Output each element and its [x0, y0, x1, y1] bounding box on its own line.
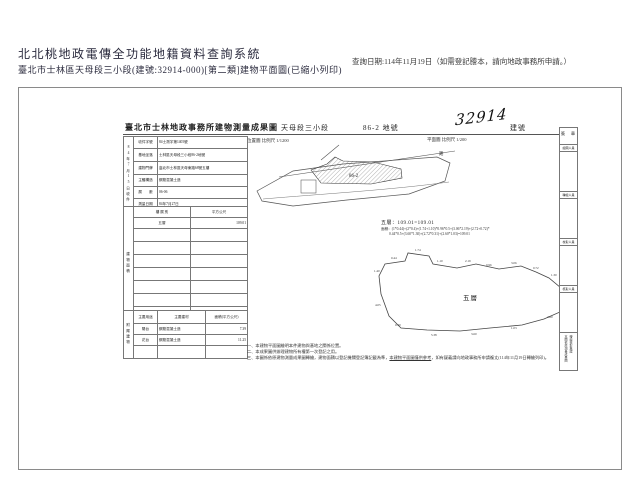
handwritten-building-number: 32914 — [455, 105, 508, 130]
road-name-label: 路 — [439, 150, 444, 157]
annex-empty-cell — [206, 346, 248, 359]
annex-table-spine: 附屬建物 — [124, 311, 134, 359]
annex-row-use: 陽台 — [134, 324, 158, 335]
annex-empty-cell — [158, 346, 206, 359]
annex-row-material: 鋼筋混凝土造 — [158, 335, 206, 346]
area-empty-cell — [134, 229, 191, 242]
area-empty-cell — [134, 294, 191, 307]
sign-blank — [560, 199, 577, 239]
floor-plan-floor-label: 五層 — [463, 294, 478, 302]
footnote-3-text: 三、本圖係依原建物測量成果圖轉繪，建物面積以登記機關登記簿記載為準， — [247, 355, 389, 360]
adjacent-structure — [301, 180, 316, 193]
footnote-3-underlined: 本建物平面圖僅供參考 — [389, 355, 431, 360]
sign-field-proofreader: 校對人員 — [560, 239, 577, 246]
title-underline — [123, 134, 559, 135]
dimension-label: 0.96 — [486, 263, 492, 267]
annex-table: 附屬建物 主要用途 主要建材 面積(平方公尺) 陽台 鋼筋混凝土造 7.39 花… — [123, 310, 248, 359]
dimension-label: 0.44 — [391, 256, 397, 260]
query-date: 查詢日期:114年11月19日（如需登記謄本，請向地政事務所申請。） — [352, 56, 571, 67]
scanned-document: 臺北市士林地政事務所建物測量成果圖 天母段三小段 86-2 地號 32914 建… — [18, 87, 622, 470]
stamp-note-line-1: 本圖依原測量成果圖 — [564, 335, 568, 370]
area-col-sqm: 平方公尺 — [191, 207, 248, 218]
dimension-label: 2.19 — [465, 259, 471, 263]
area-empty-cell — [191, 281, 248, 294]
site-location-map: 86-2 路 — [251, 144, 456, 216]
stamp-note-line-2: 轉繪核對無誤 — [569, 335, 573, 370]
dimension-label: 3.60 — [471, 332, 477, 336]
dimension-label: 3.06 — [511, 261, 517, 265]
doc-title: 臺北市士林地政事務所建物測量成果圖 — [125, 122, 278, 133]
annex-header-use: 主要用途 — [134, 311, 158, 324]
signature-header: 簽 章 — [560, 128, 577, 145]
annex-row-area: 11.25 — [206, 335, 248, 346]
info-label: 建物門牌 — [134, 162, 158, 175]
area-empty-cell — [191, 242, 248, 255]
area-empty-cell — [134, 268, 191, 281]
dimension-label: 2.60 — [547, 315, 553, 319]
sign-blank — [560, 152, 577, 192]
receipt-date-spine: 84年7月15日收件 — [124, 137, 134, 211]
dimension-label: 0.72 — [533, 266, 539, 270]
area-table-spine: 建物面積 — [124, 207, 134, 320]
sign-field-drafter: 繪圖人員 — [560, 145, 577, 152]
floor-plan-outline — [379, 253, 565, 331]
doc-section-name: 天母段三小段 — [281, 123, 329, 133]
info-value: 06-06 — [158, 187, 248, 199]
annex-row-area: 7.39 — [206, 324, 248, 335]
annex-header-material: 主要建材 — [158, 311, 206, 324]
area-col-floor: 樓 層 別 — [134, 207, 191, 218]
annex-row-material: 鋼筋混凝土造 — [158, 324, 206, 335]
info-value: 鋼筋混凝土造 — [158, 175, 248, 187]
footnotes: 一、本建物平面圖繪明本件建物與基地之關係位置。 二、本成果圖供辦理建物所有權第一… — [247, 343, 581, 361]
area-empty-cell — [191, 255, 248, 268]
dimension-label: 0.40 — [395, 323, 401, 327]
info-label: 層 數 — [134, 187, 158, 199]
sign-field-transcriber: 轉繪人員 — [560, 192, 577, 199]
annex-header-area: 面積(平方公尺) — [206, 311, 248, 324]
area-formula-line-2: 0.44*0.5+(3.60*1.30)+(2.72*0.31)+(2.60*1… — [389, 232, 470, 236]
system-title: 北北桃地政電傳全功能地籍資料查詢系統 — [18, 45, 261, 62]
dimension-label: 1.03 — [511, 326, 517, 330]
signature-column: 簽 章 繪圖人員 轉繪人員 校對人員 核對人員 本圖依原測量成果圖 轉繪核對無誤 — [559, 127, 578, 371]
info-label: 主體構造 — [134, 175, 158, 187]
area-empty-cell — [134, 242, 191, 255]
floor-plan-scale: 平面圖 比例尺 1/200 — [427, 137, 467, 143]
stamp-note: 本圖依原測量成果圖 轉繪核對無誤 — [560, 333, 577, 370]
area-table: 建物面積 樓 層 別 平方公尺 五層 109.01 合 計 109.01 — [123, 206, 248, 320]
annex-empty-cell — [134, 346, 158, 359]
info-label: 基地坐落 — [134, 149, 158, 162]
sign-blank — [560, 246, 577, 286]
info-value: 84士測字第1405號 — [158, 137, 248, 149]
dimension-label: 1.30 — [551, 273, 557, 277]
area-empty-cell — [191, 229, 248, 242]
info-label: 收件字號 — [134, 137, 158, 149]
area-row-value: 109.01 — [191, 218, 248, 229]
info-value: 士林區天母段三小段86-2地號 — [158, 149, 248, 162]
parcel-number-label: 86-2 — [349, 174, 359, 179]
document-subtitle: 臺北市士林區天母段三小段(建號:32914-000)[第二類]建物平面圖(已縮小… — [18, 63, 342, 76]
building-number-label: 建號 — [510, 123, 526, 133]
floor-plan-drawing: 五層 0.441.741.102.190.963.060.721.302.720… — [371, 246, 586, 342]
footnote-3-tail: ，如有疑義請向地政事務所申請複丈(114年11月19日轉繪列印)。 — [431, 355, 549, 360]
area-empty-cell — [134, 281, 191, 294]
footnote-3: 三、本圖係依原建物測量成果圖轉繪，建物面積以登記機關登記簿記載為準，本建物平面圖… — [247, 355, 581, 361]
dimension-label: 5.38 — [431, 333, 437, 337]
doc-lot-number: 86-2 地號 — [363, 123, 399, 133]
info-table: 84年7月15日收件 收件字號 84士測字第1405號 基地坐落 士林區天母段三… — [123, 136, 248, 211]
dimension-label: 4.05 — [375, 303, 381, 307]
dimension-label: 1.40 — [374, 269, 380, 273]
dimension-label: 1.74 — [415, 248, 421, 252]
annex-row-use: 花台 — [134, 335, 158, 346]
sign-blank — [560, 293, 577, 333]
area-empty-cell — [191, 294, 248, 307]
area-empty-cell — [191, 268, 248, 281]
info-value: 臺北市士林區天母東路68號五樓 — [158, 162, 248, 175]
area-empty-cell — [134, 255, 191, 268]
area-row-floor: 五層 — [134, 218, 191, 229]
sign-field-verifier: 核對人員 — [560, 286, 577, 293]
lower-road-line — [263, 182, 449, 199]
area-summary-line: 五層：109.01=109.01 — [381, 219, 434, 226]
dimension-label: 1.10 — [437, 259, 443, 263]
